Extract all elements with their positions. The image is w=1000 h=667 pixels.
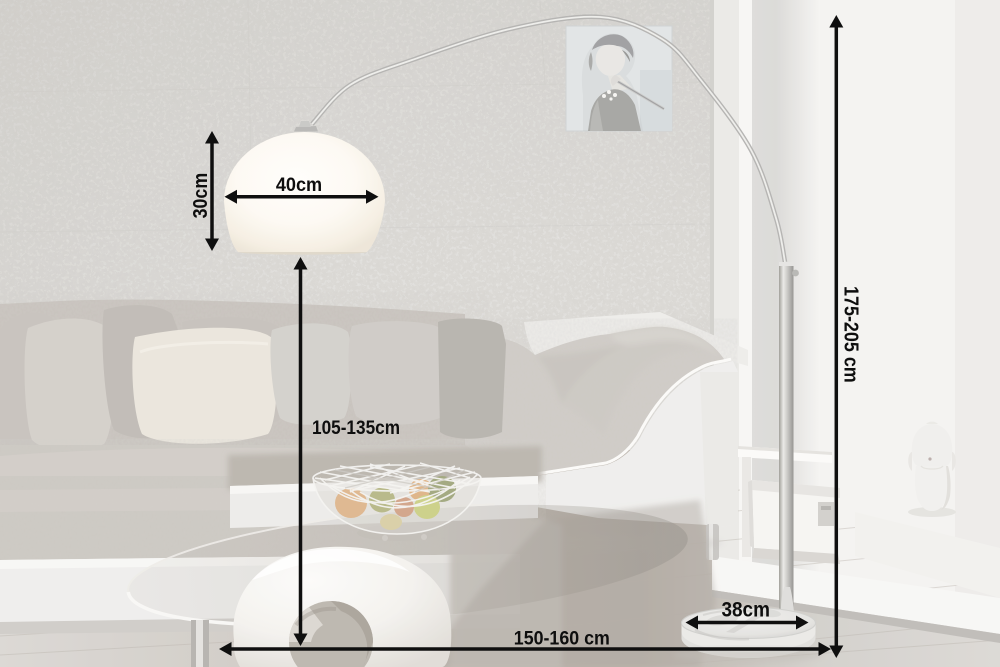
svg-text:38cm: 38cm	[721, 598, 770, 622]
svg-text:105-135cm: 105-135cm	[312, 417, 400, 439]
svg-text:150-160 cm: 150-160 cm	[514, 628, 610, 650]
svg-text:30cm: 30cm	[190, 173, 212, 219]
svg-text:40cm: 40cm	[276, 174, 322, 196]
svg-text:175-205 cm: 175-205 cm	[840, 286, 863, 383]
